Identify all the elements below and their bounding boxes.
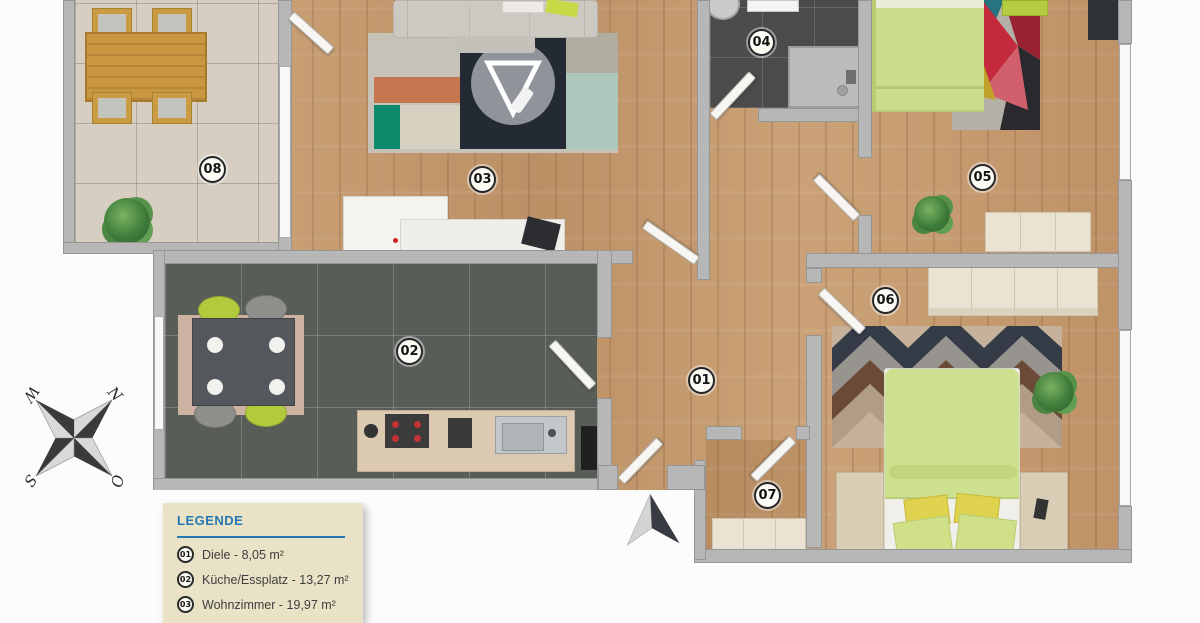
room-number: 07 — [758, 488, 776, 503]
wall — [796, 426, 810, 440]
legend-title: LEGENDE — [177, 513, 363, 528]
chair-cushion — [98, 98, 126, 118]
room-number: 06 — [876, 293, 894, 308]
room-badge-05: 05 — [969, 164, 996, 191]
legend-badge-03: 03 — [177, 596, 194, 613]
wall — [706, 426, 742, 440]
table-plates — [207, 337, 223, 353]
wall — [597, 250, 612, 338]
rug-terracotta-stripe — [374, 77, 460, 103]
compass-north-label: N — [103, 382, 126, 405]
legend-rule — [177, 536, 345, 538]
wall — [694, 549, 1132, 563]
bed-blanket-roll — [889, 465, 1017, 479]
legend-panel: LEGENDE 01 Diele - 8,05 m² 02 Küche/Essp… — [163, 503, 363, 623]
bedroom-05-bench — [1002, 0, 1048, 16]
wardrobe-divider — [1014, 265, 1015, 310]
room-number: 04 — [752, 35, 770, 50]
nightstand-item — [1033, 498, 1048, 520]
wall — [806, 268, 822, 283]
rug-light-teal-square — [566, 73, 618, 149]
coffee-machine — [448, 418, 472, 448]
shower-tray — [788, 46, 860, 108]
bathroom-radiator — [747, 0, 799, 12]
kitchen-appliance — [364, 424, 378, 438]
wall — [1118, 0, 1132, 44]
wall — [806, 335, 822, 548]
bed-blanket — [885, 369, 1019, 499]
window-terrace — [279, 66, 291, 238]
room-number: 01 — [692, 373, 710, 388]
legend-row: 01 Diele - 8,05 m² — [177, 546, 363, 563]
nightstand-left — [836, 472, 884, 556]
window-kitchen — [154, 316, 164, 430]
wall — [598, 465, 618, 490]
room-number: 02 — [400, 344, 418, 359]
legend-badge-02: 02 — [177, 571, 194, 588]
room-badge-04: 04 — [748, 29, 775, 56]
room-badge-01: 01 — [688, 367, 715, 394]
window-bedroom-06 — [1119, 330, 1131, 506]
sofa-armrest-line — [584, 1, 585, 39]
wall — [858, 0, 872, 158]
sofa-white-pillow — [502, 1, 544, 13]
terrace-plant — [104, 198, 150, 244]
room-number: 08 — [203, 162, 221, 177]
wall — [63, 0, 75, 254]
shower-drain — [837, 85, 848, 96]
legend-badge-01: 01 — [177, 546, 194, 563]
compass-rose: N O S W — [14, 378, 134, 498]
wall — [758, 108, 872, 122]
terrace-chair — [92, 92, 132, 124]
terrace-chair — [152, 92, 192, 124]
dining-table — [192, 318, 295, 406]
chair-cushion — [158, 14, 186, 34]
bedroom-06-plant — [1034, 372, 1074, 412]
room-badge-07: 07 — [754, 482, 781, 509]
sink-faucet — [548, 429, 556, 437]
legend-label-02: Küche/Essplatz - 13,27 m² — [202, 573, 349, 587]
sofa-armrest-line — [407, 1, 408, 39]
window-bedroom-05 — [1119, 44, 1131, 180]
room-number: 05 — [973, 170, 991, 185]
bedroom-05-plant — [914, 196, 950, 232]
legend-row: 03 Wohnzimmer - 19,97 m² — [177, 596, 363, 613]
bed-sheet-fold — [876, 0, 984, 8]
wardrobe-front-edge — [929, 308, 1097, 315]
outside-area — [1132, 0, 1200, 600]
wall — [697, 0, 710, 280]
wardrobe-divider — [743, 519, 744, 551]
desk-red-dot — [393, 238, 398, 243]
shower-faucet — [846, 70, 856, 84]
rug-teal-square — [374, 105, 400, 149]
wardrobe-divider — [775, 519, 776, 551]
wardrobe-07 — [712, 518, 806, 550]
bed-blanket-fold — [876, 86, 984, 89]
sofa-lime-pillow — [545, 0, 579, 17]
legend-row: 02 Küche/Essplatz - 13,27 m² — [177, 571, 363, 588]
room-number: 03 — [473, 172, 491, 187]
wall — [1118, 180, 1132, 330]
room-badge-06: 06 — [872, 287, 899, 314]
sofa-cushion-line — [469, 5, 470, 39]
dresser-divider — [1020, 213, 1021, 253]
wardrobe-divider — [1057, 265, 1058, 310]
sofa — [393, 0, 598, 38]
bed-05 — [872, 0, 984, 112]
bedroom-05-dresser — [985, 212, 1091, 252]
chair-cushion — [158, 98, 186, 118]
wardrobe-06 — [928, 264, 1098, 316]
north-arrow-icon — [610, 484, 696, 556]
room-badge-03: 03 — [469, 166, 496, 193]
stove — [385, 414, 429, 448]
room-badge-08: 08 — [199, 156, 226, 183]
chair-cushion — [98, 14, 126, 34]
bedroom-05-dresser-dark — [1088, 0, 1122, 40]
dresser-divider — [1055, 213, 1056, 253]
compass-east-label: O — [107, 473, 127, 488]
legend-label-01: Diele - 8,05 m² — [202, 548, 284, 562]
wall — [806, 253, 1132, 268]
rug-gray-square — [566, 33, 618, 73]
bed-06 — [884, 368, 1020, 558]
sink-basin — [502, 423, 544, 451]
nightstand-right — [1020, 472, 1068, 556]
room-badge-02: 02 — [396, 338, 423, 365]
stove-burners — [392, 421, 399, 428]
sofa-chaise — [455, 36, 535, 53]
wall — [153, 250, 633, 264]
kitchen-sink — [495, 416, 567, 454]
wardrobe-divider — [971, 265, 972, 310]
rug-beige-square — [400, 105, 460, 149]
